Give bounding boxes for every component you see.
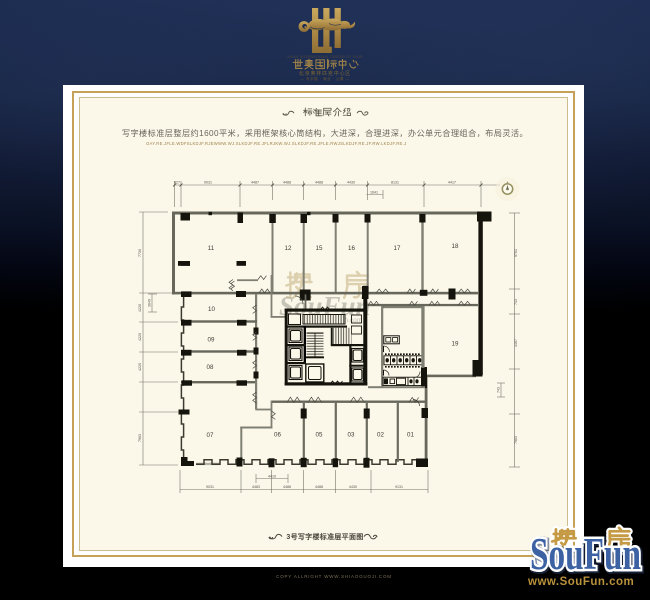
svg-text:12: 12	[285, 245, 292, 252]
svg-text:7963: 7963	[138, 434, 142, 442]
svg-text:4417: 4417	[448, 181, 456, 185]
svg-text:4220: 4220	[138, 363, 142, 371]
svg-text:09: 09	[208, 337, 215, 344]
svg-text:08: 08	[207, 364, 214, 371]
svg-text:10: 10	[208, 306, 215, 313]
svg-text:05: 05	[316, 432, 323, 439]
svg-text:9031: 9031	[204, 181, 212, 185]
svg-text:18: 18	[452, 243, 459, 250]
svg-text:15: 15	[316, 245, 323, 252]
svg-text:4488: 4488	[315, 485, 323, 489]
svg-text:16: 16	[348, 245, 355, 252]
svg-text:4488: 4488	[283, 485, 291, 489]
svg-text:SouFun: SouFun	[530, 529, 641, 578]
svg-text:03: 03	[348, 432, 355, 439]
svg-text:8131: 8131	[391, 181, 399, 185]
svg-text:3649: 3649	[148, 299, 152, 307]
svg-text:1641: 1641	[370, 190, 378, 194]
svg-text:7963: 7963	[514, 436, 518, 444]
svg-text:9751: 9751	[514, 249, 518, 257]
svg-text:743: 743	[514, 299, 518, 305]
svg-text:9031: 9031	[206, 485, 214, 489]
svg-text:07: 07	[207, 432, 214, 439]
svg-text:11: 11	[208, 245, 215, 252]
svg-text:427: 427	[174, 181, 180, 185]
svg-text:4220: 4220	[138, 333, 142, 341]
svg-text:4488: 4488	[315, 181, 323, 185]
svg-text:4430: 4430	[349, 485, 357, 489]
svg-text:4410: 4410	[268, 474, 276, 478]
svg-text:01: 01	[407, 432, 414, 439]
svg-text:4488: 4488	[283, 181, 291, 185]
svg-text:19: 19	[452, 341, 459, 348]
svg-text:17: 17	[394, 245, 401, 252]
svg-text:06: 06	[274, 432, 281, 439]
svg-text:4220: 4220	[138, 304, 142, 312]
svg-text:743: 743	[497, 387, 501, 393]
svg-text:4467: 4467	[514, 339, 518, 347]
svg-text:02: 02	[377, 432, 384, 439]
svg-text:9131: 9131	[395, 485, 403, 489]
svg-text:4483: 4483	[252, 485, 260, 489]
svg-text:7730: 7730	[138, 249, 142, 257]
svg-text:4430: 4430	[347, 181, 355, 185]
svg-text:4487: 4487	[251, 181, 259, 185]
